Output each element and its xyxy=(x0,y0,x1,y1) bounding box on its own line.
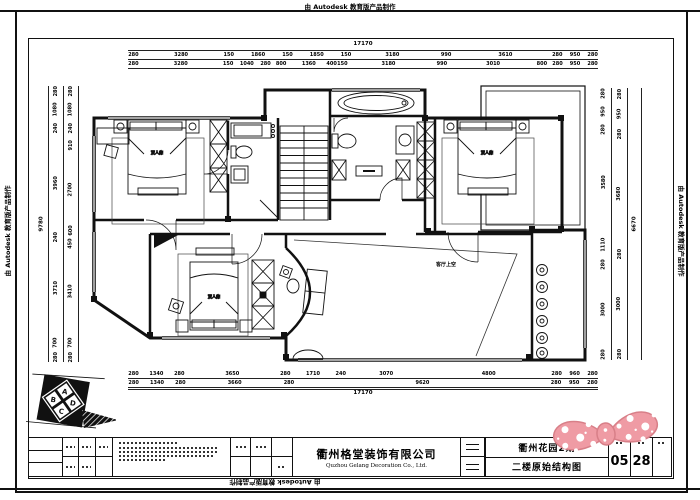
dim-value: 280 xyxy=(598,349,609,359)
dim-bottom-overall: 17170 xyxy=(128,389,598,399)
dim-value: 1850 xyxy=(293,51,341,59)
cad-sheet: 由 Autodesk 教育版产品制作 由 Autodesk 教育版产品制作 由 … xyxy=(0,0,700,500)
dim-value: 6670 xyxy=(632,216,638,231)
bedroom-topright: 双人床 xyxy=(442,120,534,224)
dim-value: 280 xyxy=(51,352,61,362)
dim-value: 3000 xyxy=(576,297,664,311)
dim-value: 1360 xyxy=(291,60,326,68)
tb-approval-grid xyxy=(231,438,293,476)
dim-left-overall: 9780 xyxy=(36,86,49,362)
dim-value: 950 xyxy=(563,51,587,59)
dim-right-inner: 280950280358011102803000280 xyxy=(597,88,612,360)
bed-label: 双人床 xyxy=(151,149,163,155)
dim-value: 150 xyxy=(341,51,352,59)
tb-left-rows xyxy=(29,438,63,476)
terrace-plants xyxy=(537,265,548,359)
north-arrow: A D B C xyxy=(26,370,116,442)
dim-value: 280 xyxy=(614,349,626,359)
bed-label: 双人床 xyxy=(208,293,220,299)
dim-left-inner: 280108024091027006004503410700280 xyxy=(64,86,79,362)
dim-value: 1860 xyxy=(234,51,282,59)
room-label-void: 客厅上空 xyxy=(435,261,456,268)
dim-value: 150 xyxy=(223,51,234,59)
dim-value: 600 xyxy=(64,226,79,236)
void-outline xyxy=(294,240,517,356)
logo-bars xyxy=(466,464,479,470)
dim-value: 240 xyxy=(51,232,61,242)
dim-top-row2: 2803280150104028080013604001503180990301… xyxy=(128,59,598,69)
autodesk-banner-bottom: 由 Autodesk 教育版产品制作 xyxy=(195,478,355,488)
dim-value: 3180 xyxy=(348,60,429,68)
dim-value: 950 xyxy=(563,60,587,68)
tb-company: 衢州格堂装饰有限公司 Quzhou Gelang Decoration Co.,… xyxy=(293,438,461,476)
dim-value: 990 xyxy=(433,51,459,59)
dim-value: 280 xyxy=(260,60,271,68)
dim-value: 800 xyxy=(532,60,552,68)
dim-value: 1040 xyxy=(234,60,261,68)
dim-value: 280 xyxy=(552,51,563,59)
door-swings xyxy=(146,220,478,264)
dim-value: 9620 xyxy=(295,379,551,387)
dim-value: 150 xyxy=(282,51,293,59)
dim-value: 280 xyxy=(51,86,61,96)
dim-value: 280 xyxy=(175,379,186,387)
dim-value: 950 xyxy=(562,379,587,387)
dim-value: 3010 xyxy=(455,60,532,68)
tb-logo-cell xyxy=(461,438,485,476)
dim-value: 280 xyxy=(66,86,76,96)
dim-value: 910 xyxy=(60,140,83,150)
dim-value: 990 xyxy=(429,60,454,68)
autodesk-banner-top: 由 Autodesk 教育版产品制作 xyxy=(0,1,700,11)
dim-value: 150 xyxy=(337,60,348,68)
dim-value: 3660 xyxy=(186,379,283,387)
dim-value: 3280 xyxy=(139,60,223,68)
dim-value: 400 xyxy=(326,60,337,68)
bed-label: 双人床 xyxy=(481,149,493,155)
dim-value: 280 xyxy=(614,249,626,259)
dim-value: 3180 xyxy=(351,51,433,59)
dim-value: 280 xyxy=(283,379,294,387)
logo-bars xyxy=(466,444,479,450)
master-bedroom: 双人床 xyxy=(97,120,204,224)
compass-triangle xyxy=(82,410,116,428)
dim-value: 17170 xyxy=(353,41,372,47)
company-name-cn: 衢州格堂装饰有限公司 xyxy=(317,446,437,462)
tb-signature-grid xyxy=(63,438,113,476)
dim-value: 280 xyxy=(552,60,563,68)
autodesk-banner-right: 由 Autodesk 教育版产品制作 xyxy=(675,151,687,311)
dim-value: 1080 xyxy=(58,103,85,117)
dim-value: 3610 xyxy=(459,51,552,59)
dim-value: 280 xyxy=(587,51,598,59)
dim-right-outer: 28095028036802803000280 xyxy=(613,88,628,360)
dim-value: 280 xyxy=(598,259,609,269)
dim-right-overall: 6670 xyxy=(629,88,642,360)
dim-value: 240 xyxy=(66,123,76,133)
dim-value: 280 xyxy=(614,129,626,139)
dim-value: 280 xyxy=(550,379,561,387)
company-name-en: Quzhou Gelang Decoration Co., Ltd. xyxy=(326,463,427,469)
dim-value: 800 xyxy=(271,60,291,68)
center-bathroom xyxy=(332,92,414,200)
dim-value: 280 xyxy=(128,379,139,387)
dim-value: 280 xyxy=(128,60,139,68)
dim-value: 17170 xyxy=(353,390,372,396)
tb-notes xyxy=(113,438,231,476)
bedroom-bottomleft: 双人床 xyxy=(154,234,252,336)
dim-value: 700 xyxy=(62,338,79,348)
dim-value: 280 xyxy=(598,124,609,134)
floor-plan: 客厅上空 xyxy=(84,82,588,374)
dim-left-mid: 280108024039602403710700280 xyxy=(49,86,64,362)
dim-value: 280 xyxy=(587,370,598,378)
dim-value: 280 xyxy=(587,379,598,387)
dim-value: 150 xyxy=(223,60,234,68)
dim-value: 240 xyxy=(51,123,61,133)
dim-value: 280 xyxy=(66,352,76,362)
dim-value: 1340 xyxy=(139,379,175,387)
dim-value: 3280 xyxy=(139,51,224,59)
dim-value: 280 xyxy=(128,51,139,59)
wardrobes xyxy=(210,120,435,329)
dim-value: 280 xyxy=(614,89,626,99)
dim-value: 280 xyxy=(587,60,598,68)
dim-value: 280 xyxy=(598,88,609,98)
dim-value: 9780 xyxy=(39,216,45,231)
bowtie-stamp xyxy=(544,404,668,462)
dim-bottom-row2: 280134028036602809620280950280 xyxy=(128,378,598,388)
dim-value: 450 xyxy=(65,239,76,249)
staircase xyxy=(280,126,328,220)
